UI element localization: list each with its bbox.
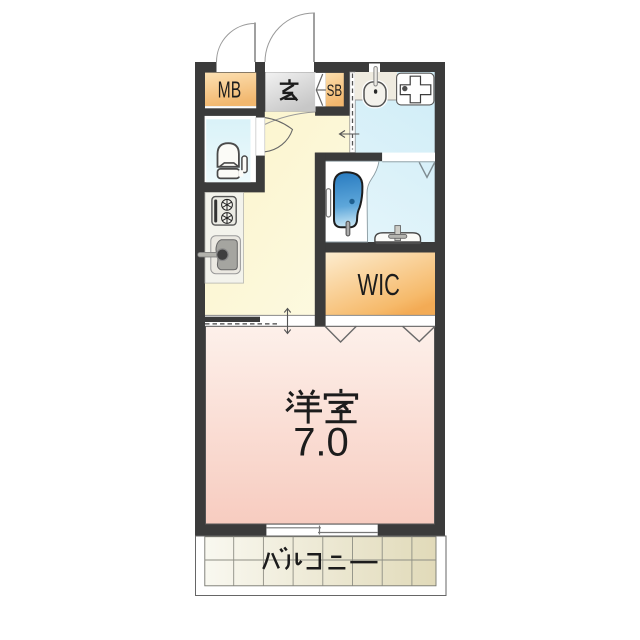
svg-text:WIC: WIC [357,267,400,302]
svg-text:7.0: 7.0 [293,421,349,465]
svg-text:SB: SB [327,81,343,100]
svg-text:MB: MB [218,77,242,103]
